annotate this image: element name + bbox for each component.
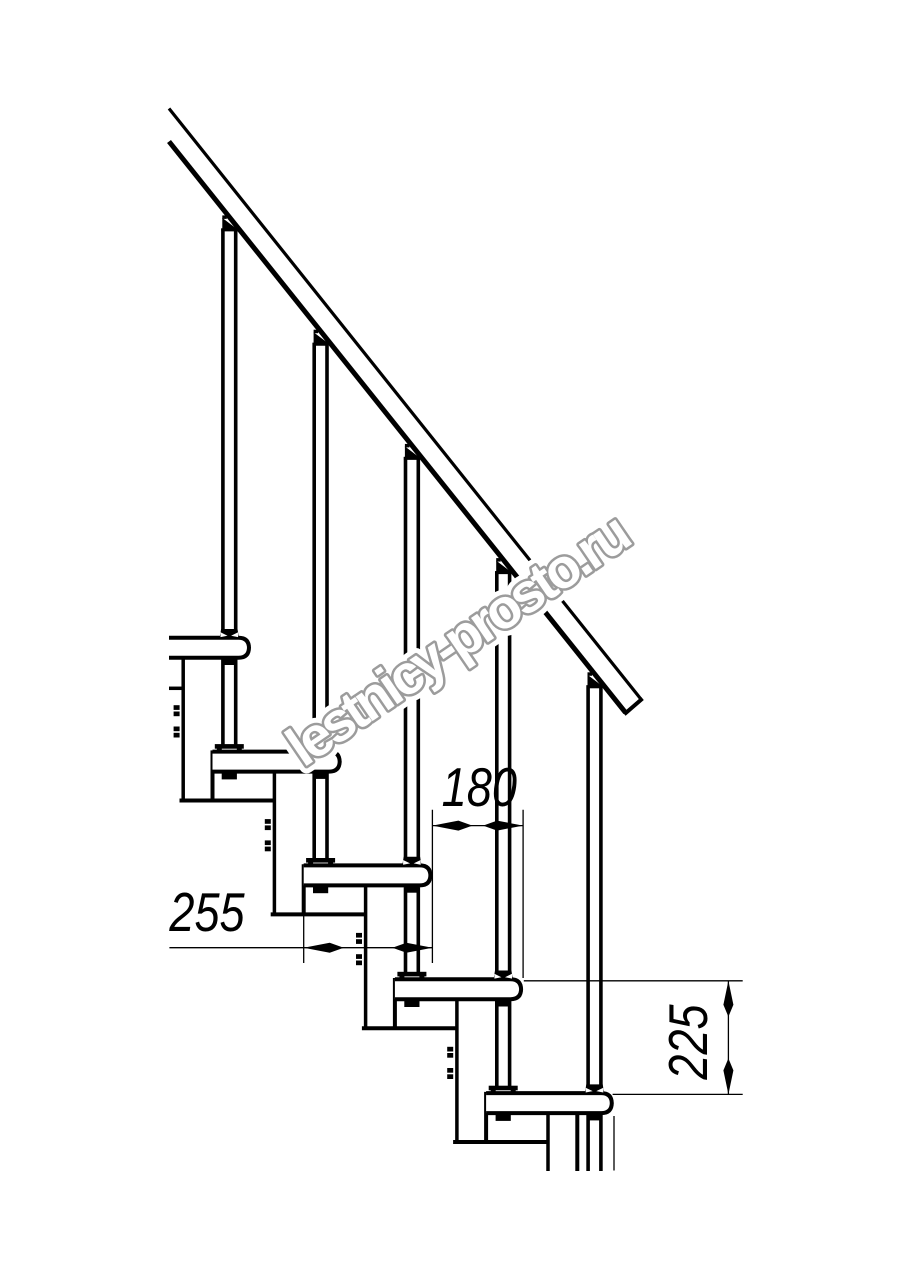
svg-text:225: 225	[657, 1003, 719, 1080]
svg-text:180: 180	[442, 756, 517, 818]
svg-text:255: 255	[168, 881, 245, 943]
